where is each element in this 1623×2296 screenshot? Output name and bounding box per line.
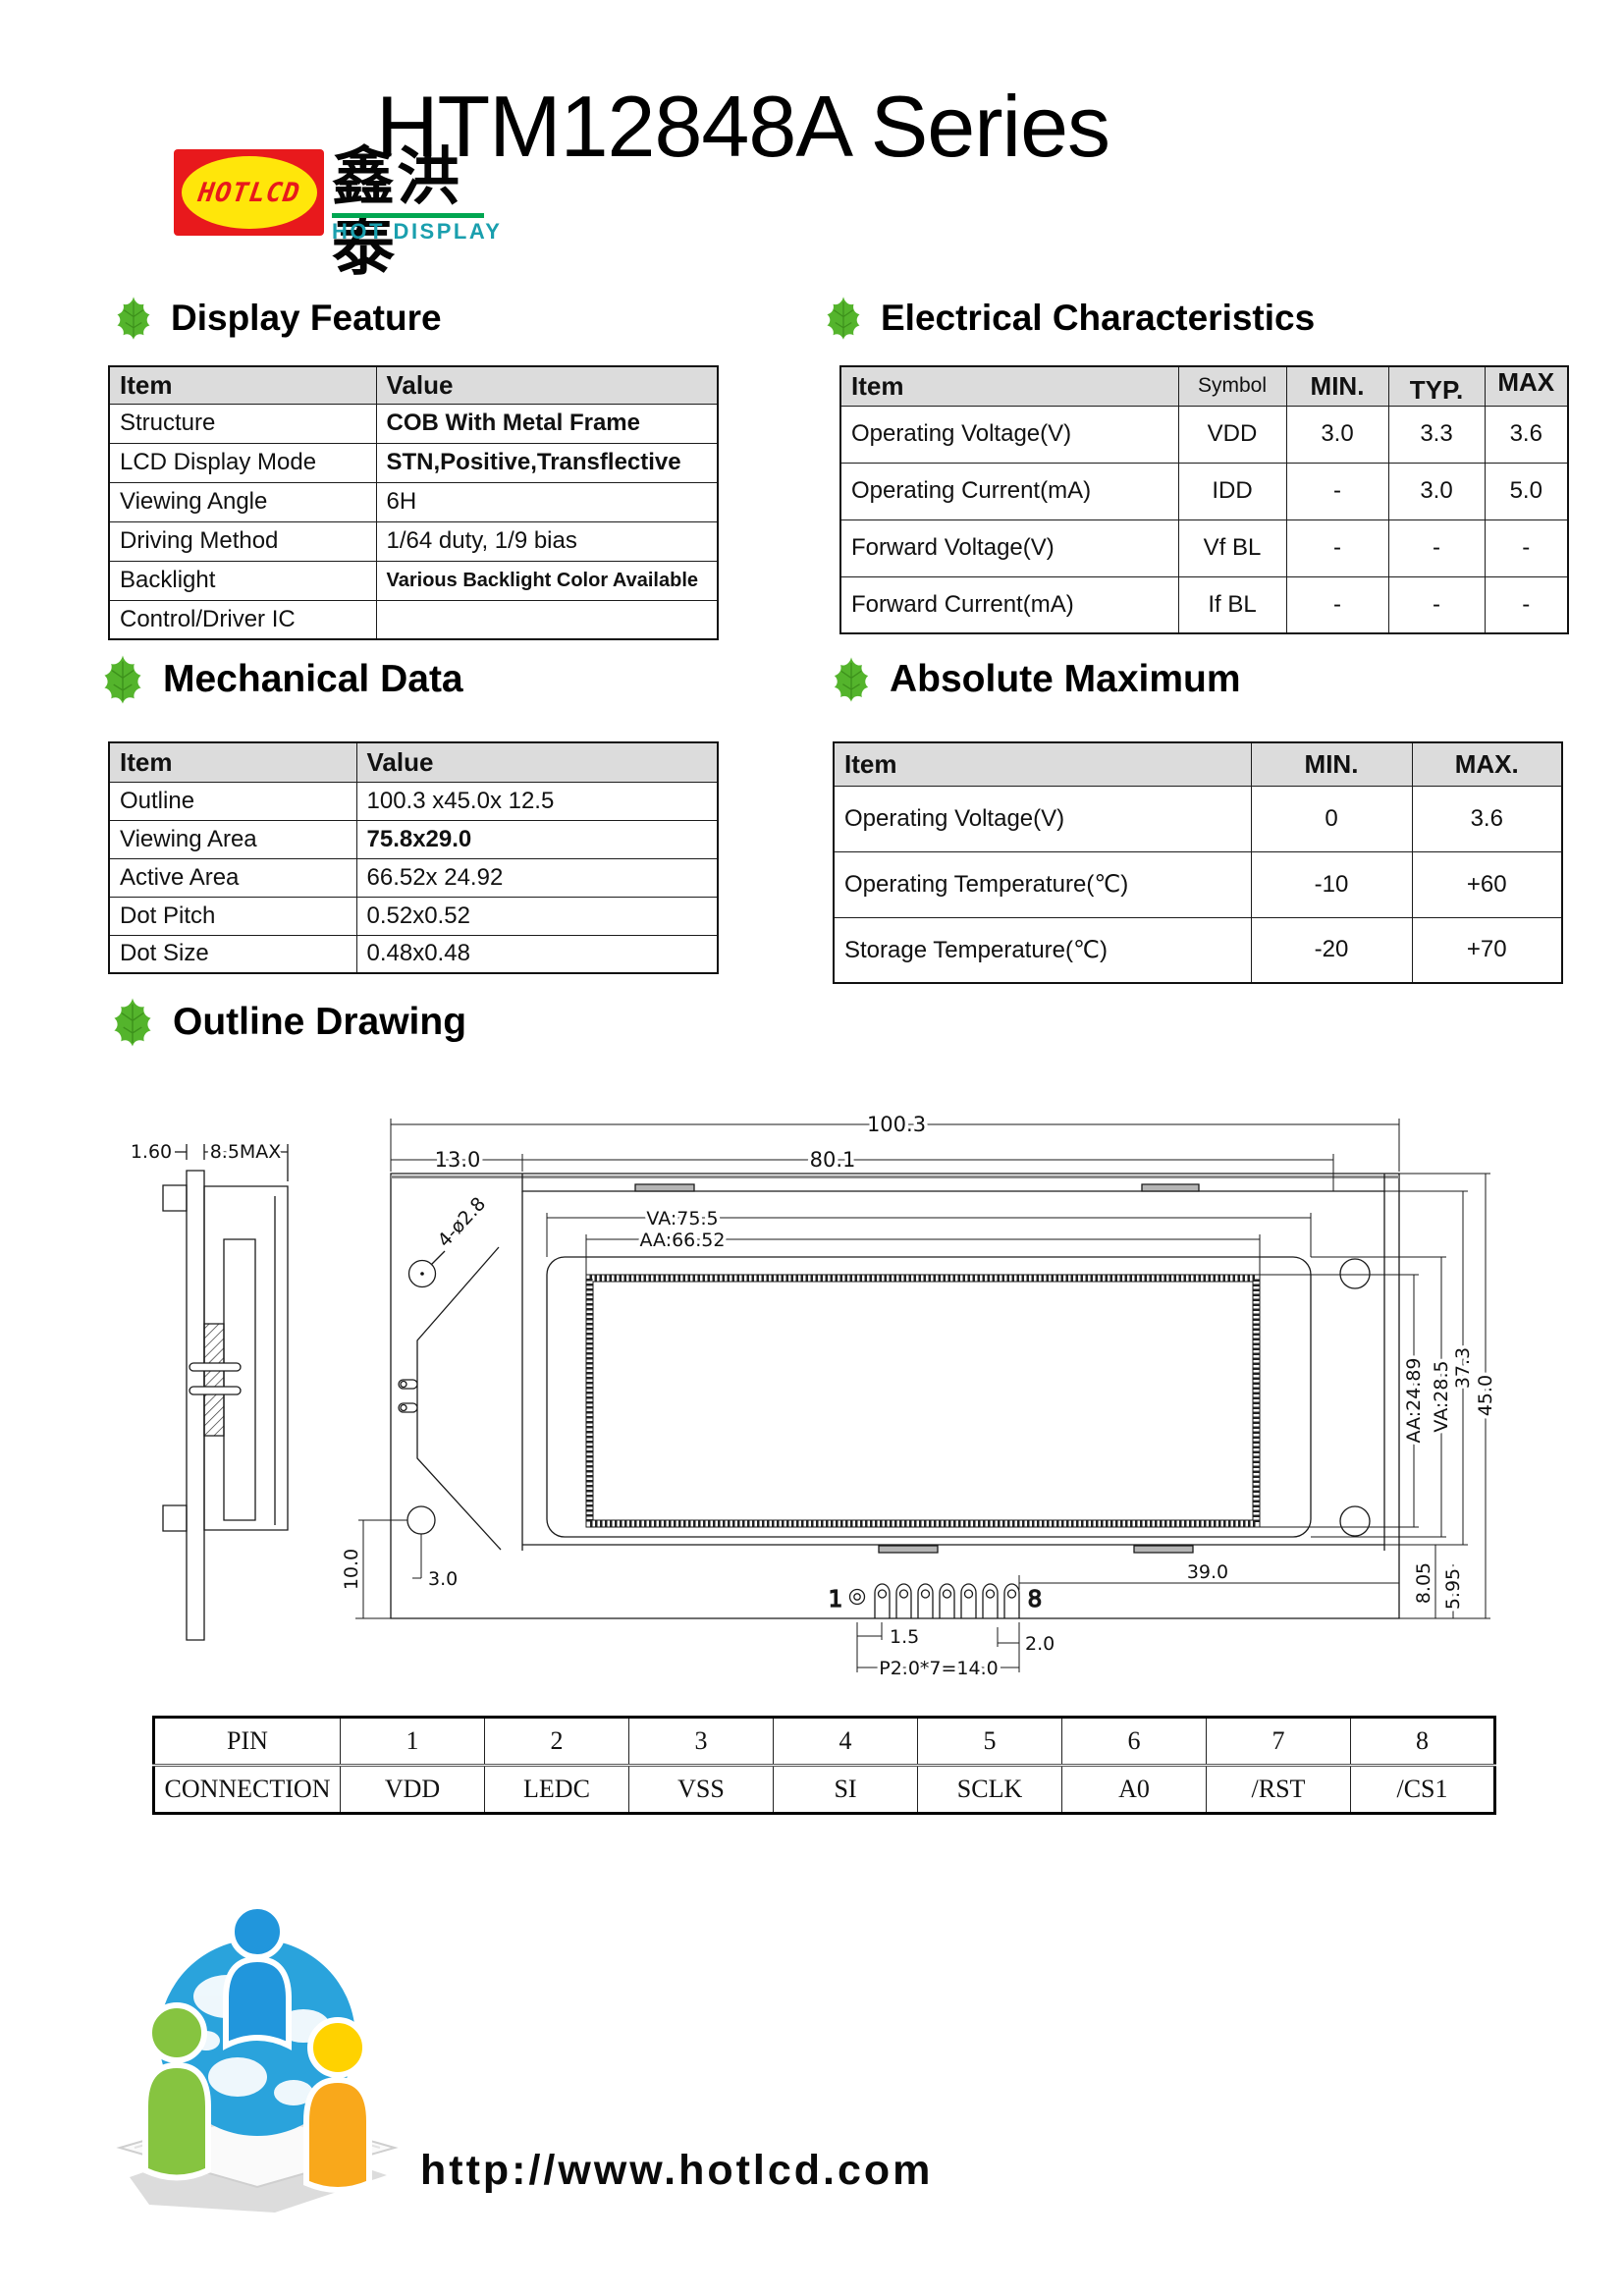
cell: VDD — [1178, 406, 1286, 463]
pin-connection-table: PIN 1 2 3 4 5 6 7 8 CONNECTION VDD LEDC … — [152, 1716, 1496, 1815]
cell: Viewing Area — [109, 820, 356, 858]
cell: 75.8x29.0 — [356, 820, 718, 858]
col-header: Item — [109, 366, 376, 404]
logo-subtitle: HOT DISPLAY — [332, 219, 502, 245]
cell: Backlight — [109, 561, 376, 600]
website-link[interactable]: http://www.hotlcd.com — [420, 2147, 933, 2195]
col-header: Symbol — [1178, 366, 1286, 406]
dim-label: P2.0*7=14.0 — [879, 1658, 999, 1679]
cell: IDD — [1178, 463, 1286, 519]
cell: LCD Display Mode — [109, 443, 376, 482]
dim-label: 10.0 — [341, 1549, 362, 1590]
table-header-row: Item Value — [109, 742, 718, 782]
footer-globe-logo — [90, 1881, 424, 2214]
section-title: Display Feature — [171, 298, 442, 339]
section-display-feature: Display Feature — [110, 295, 442, 342]
side-view: 1.60 8.5MAX — [131, 1141, 288, 1640]
cell: STN,Positive,Transflective — [376, 443, 718, 482]
cell: Forward Current(mA) — [840, 576, 1178, 633]
cell: Active Area — [109, 858, 356, 897]
cell: LEDC — [485, 1766, 629, 1814]
table-row: Dot Pitch0.52x0.52 — [109, 897, 718, 935]
display-feature-table: Item Value StructureCOB With Metal Frame… — [108, 365, 719, 640]
cell: 0.48x0.48 — [356, 935, 718, 973]
cell: Operating Voltage(V) — [834, 786, 1251, 851]
cell: 3.6 — [1485, 406, 1568, 463]
front-view: 4-ø2.8 — [391, 1174, 1399, 1618]
cell: VSS — [629, 1766, 774, 1814]
cell: PIN — [154, 1718, 341, 1766]
pin-row: 1 8 — [829, 1584, 1043, 1618]
cell: 5.0 — [1485, 463, 1568, 519]
table-row: Operating Current(mA)IDD-3.05.0 — [840, 463, 1568, 519]
dims-bottom-left: 10.0 3.0 — [341, 1520, 458, 1618]
datasheet-page: HOTLCD 鑫洪泰 HOT DISPLAY HTM12848A Series … — [0, 0, 1623, 2296]
col-header: MAX — [1485, 366, 1568, 406]
dim-label: 80.1 — [810, 1148, 856, 1172]
cell: Forward Voltage(V) — [840, 519, 1178, 576]
cell: Viewing Angle — [109, 482, 376, 521]
table-row: Operating Temperature(℃)-10+60 — [834, 851, 1562, 917]
table-row: Operating Voltage(V)VDD3.03.33.6 — [840, 406, 1568, 463]
section-absolute: Absolute Maximum — [827, 655, 1241, 704]
cell: Control/Driver IC — [109, 600, 376, 639]
cell: 3.3 — [1388, 406, 1485, 463]
pin-number-row: PIN 1 2 3 4 5 6 7 8 — [154, 1718, 1495, 1766]
cell: - — [1286, 576, 1388, 633]
cell: COB With Metal Frame — [376, 404, 718, 443]
table-row: Forward Current(mA)If BL--- — [840, 576, 1568, 633]
leaf-icon — [827, 655, 876, 704]
cell: 66.52x 24.92 — [356, 858, 718, 897]
cell: 3.0 — [1286, 406, 1388, 463]
cell: Operating Temperature(℃) — [834, 851, 1251, 917]
dim-label: 1.60 — [131, 1141, 172, 1163]
section-electrical: Electrical Characteristics — [820, 295, 1315, 342]
dim-label: 39.0 — [1187, 1561, 1228, 1583]
cell: 6H — [376, 482, 718, 521]
section-title: Outline Drawing — [173, 1001, 466, 1044]
cell: -20 — [1251, 917, 1412, 983]
dim-label: VA:28.5 — [1431, 1360, 1452, 1432]
cell: - — [1388, 519, 1485, 576]
dim-label: AA:66.52 — [640, 1230, 726, 1251]
table-row: Viewing Area75.8x29.0 — [109, 820, 718, 858]
cell: 2 — [485, 1718, 629, 1766]
dim-label: 37.3 — [1452, 1347, 1474, 1389]
cell: /CS1 — [1351, 1766, 1495, 1814]
col-header: Item — [109, 742, 356, 782]
section-outline: Outline Drawing — [106, 996, 466, 1049]
col-header: Item — [840, 366, 1178, 406]
pin-connection-row: CONNECTION VDD LEDC VSS SI SCLK A0 /RST … — [154, 1766, 1495, 1814]
table-row: Forward Voltage(V)Vf BL--- — [840, 519, 1568, 576]
cell: 0.52x0.52 — [356, 897, 718, 935]
cell: +60 — [1412, 851, 1562, 917]
cell: Structure — [109, 404, 376, 443]
cell: Dot Pitch — [109, 897, 356, 935]
cell: 4 — [774, 1718, 918, 1766]
section-mechanical: Mechanical Data — [96, 653, 463, 706]
cell: 3.0 — [1388, 463, 1485, 519]
col-header: TYP. — [1388, 366, 1485, 406]
table-row: BacklightVarious Backlight Color Availab… — [109, 561, 718, 600]
cell: SCLK — [918, 1766, 1062, 1814]
cell: A0 — [1062, 1766, 1207, 1814]
cell: 100.3 x45.0x 12.5 — [356, 782, 718, 820]
pin-number-first: 1 — [829, 1587, 843, 1613]
cell: /RST — [1207, 1766, 1351, 1814]
section-title: Mechanical Data — [163, 658, 463, 701]
electrical-table: Item Symbol MIN. TYP. MAX Operating Volt… — [839, 365, 1569, 634]
dim-label: 1.5 — [890, 1626, 919, 1648]
table-row: Outline100.3 x45.0x 12.5 — [109, 782, 718, 820]
dims-pins: 39.0 1.5 2.0 P2.0*7=14.0 — [857, 1561, 1399, 1679]
absolute-maximum-table: Item MIN. MAX. Operating Voltage(V)03.6 … — [833, 741, 1563, 984]
cell: 8 — [1351, 1718, 1495, 1766]
cell: CONNECTION — [154, 1766, 341, 1814]
cell: 1/64 duty, 1/9 bias — [376, 521, 718, 561]
cell: Outline — [109, 782, 356, 820]
leaf-icon — [820, 295, 867, 342]
table-row: Driving Method1/64 duty, 1/9 bias — [109, 521, 718, 561]
dims-right: AA:24.89 VA:28.5 37.3 45.0 8.05 5.95 — [1260, 1174, 1496, 1618]
hole-label: 4-ø2.8 — [434, 1193, 491, 1251]
dim-label: 100.3 — [867, 1113, 926, 1136]
section-title: Absolute Maximum — [890, 658, 1241, 701]
cell: -10 — [1251, 851, 1412, 917]
col-header: Value — [356, 742, 718, 782]
company-logo: HOTLCD — [174, 149, 324, 236]
table-row: StructureCOB With Metal Frame — [109, 404, 718, 443]
cell: 0 — [1251, 786, 1412, 851]
table-row: Dot Size0.48x0.48 — [109, 935, 718, 973]
col-header: MAX. — [1412, 742, 1562, 786]
cell: Operating Current(mA) — [840, 463, 1178, 519]
cell: +70 — [1412, 917, 1562, 983]
cell: 3 — [629, 1718, 774, 1766]
dim-label: VA:75.5 — [646, 1208, 718, 1230]
col-header: MIN. — [1251, 742, 1412, 786]
cell: 1 — [341, 1718, 485, 1766]
table-row: Active Area66.52x 24.92 — [109, 858, 718, 897]
col-header: MIN. — [1286, 366, 1388, 406]
table-row: Operating Voltage(V)03.6 — [834, 786, 1562, 851]
cell: 6 — [1062, 1718, 1207, 1766]
section-title: Electrical Characteristics — [881, 298, 1315, 339]
logo-underline — [332, 213, 484, 218]
col-header: Value — [376, 366, 718, 404]
cell: 5 — [918, 1718, 1062, 1766]
cell: If BL — [1178, 576, 1286, 633]
dim-label: 2.0 — [1025, 1633, 1055, 1655]
dim-label: 8.5MAX — [210, 1141, 282, 1163]
table-row: Control/Driver IC — [109, 600, 718, 639]
outline-drawing: 1.60 8.5MAX — [39, 1066, 1584, 1714]
dim-label: 8.05 — [1413, 1562, 1434, 1604]
dim-label: 45.0 — [1475, 1375, 1496, 1416]
col-header: Item — [834, 742, 1251, 786]
cell: Vf BL — [1178, 519, 1286, 576]
cell — [376, 600, 718, 639]
cell: VDD — [341, 1766, 485, 1814]
dims-top: 100.3 13.0 80.1 VA:75.5 AA:66.52 — [391, 1113, 1399, 1275]
mechanical-table: Item Value Outline100.3 x45.0x 12.5 View… — [108, 741, 719, 974]
page-title: HTM12848A Series — [376, 77, 1109, 177]
cell: - — [1286, 519, 1388, 576]
cell: Operating Voltage(V) — [840, 406, 1178, 463]
leaf-icon — [110, 295, 157, 342]
cell: 7 — [1207, 1718, 1351, 1766]
dim-label: 5.95 — [1442, 1568, 1464, 1610]
cell: Dot Size — [109, 935, 356, 973]
cell: Various Backlight Color Available — [376, 561, 718, 600]
cell: Storage Temperature(℃) — [834, 917, 1251, 983]
table-row: LCD Display ModeSTN,Positive,Transflecti… — [109, 443, 718, 482]
table-header-row: Item Value — [109, 366, 718, 404]
table-header-row: Item MIN. MAX. — [834, 742, 1562, 786]
table-row: Storage Temperature(℃)-20+70 — [834, 917, 1562, 983]
leaf-icon — [106, 996, 159, 1049]
cell: SI — [774, 1766, 918, 1814]
table-header-row: Item Symbol MIN. TYP. MAX — [840, 366, 1568, 406]
cell: Driving Method — [109, 521, 376, 561]
pin-number-last: 8 — [1028, 1587, 1043, 1613]
dim-label: AA:24.89 — [1403, 1358, 1425, 1444]
cell: 3.6 — [1412, 786, 1562, 851]
logo-ellipse: HOTLCD — [182, 156, 317, 229]
cell: - — [1388, 576, 1485, 633]
dim-label: 3.0 — [428, 1568, 458, 1590]
cell: - — [1286, 463, 1388, 519]
cell: - — [1485, 576, 1568, 633]
cell: - — [1485, 519, 1568, 576]
logo-wordmark: HOTLCD — [196, 178, 302, 208]
dim-label: 13.0 — [435, 1148, 481, 1172]
table-row: Viewing Angle6H — [109, 482, 718, 521]
leaf-icon — [96, 653, 149, 706]
